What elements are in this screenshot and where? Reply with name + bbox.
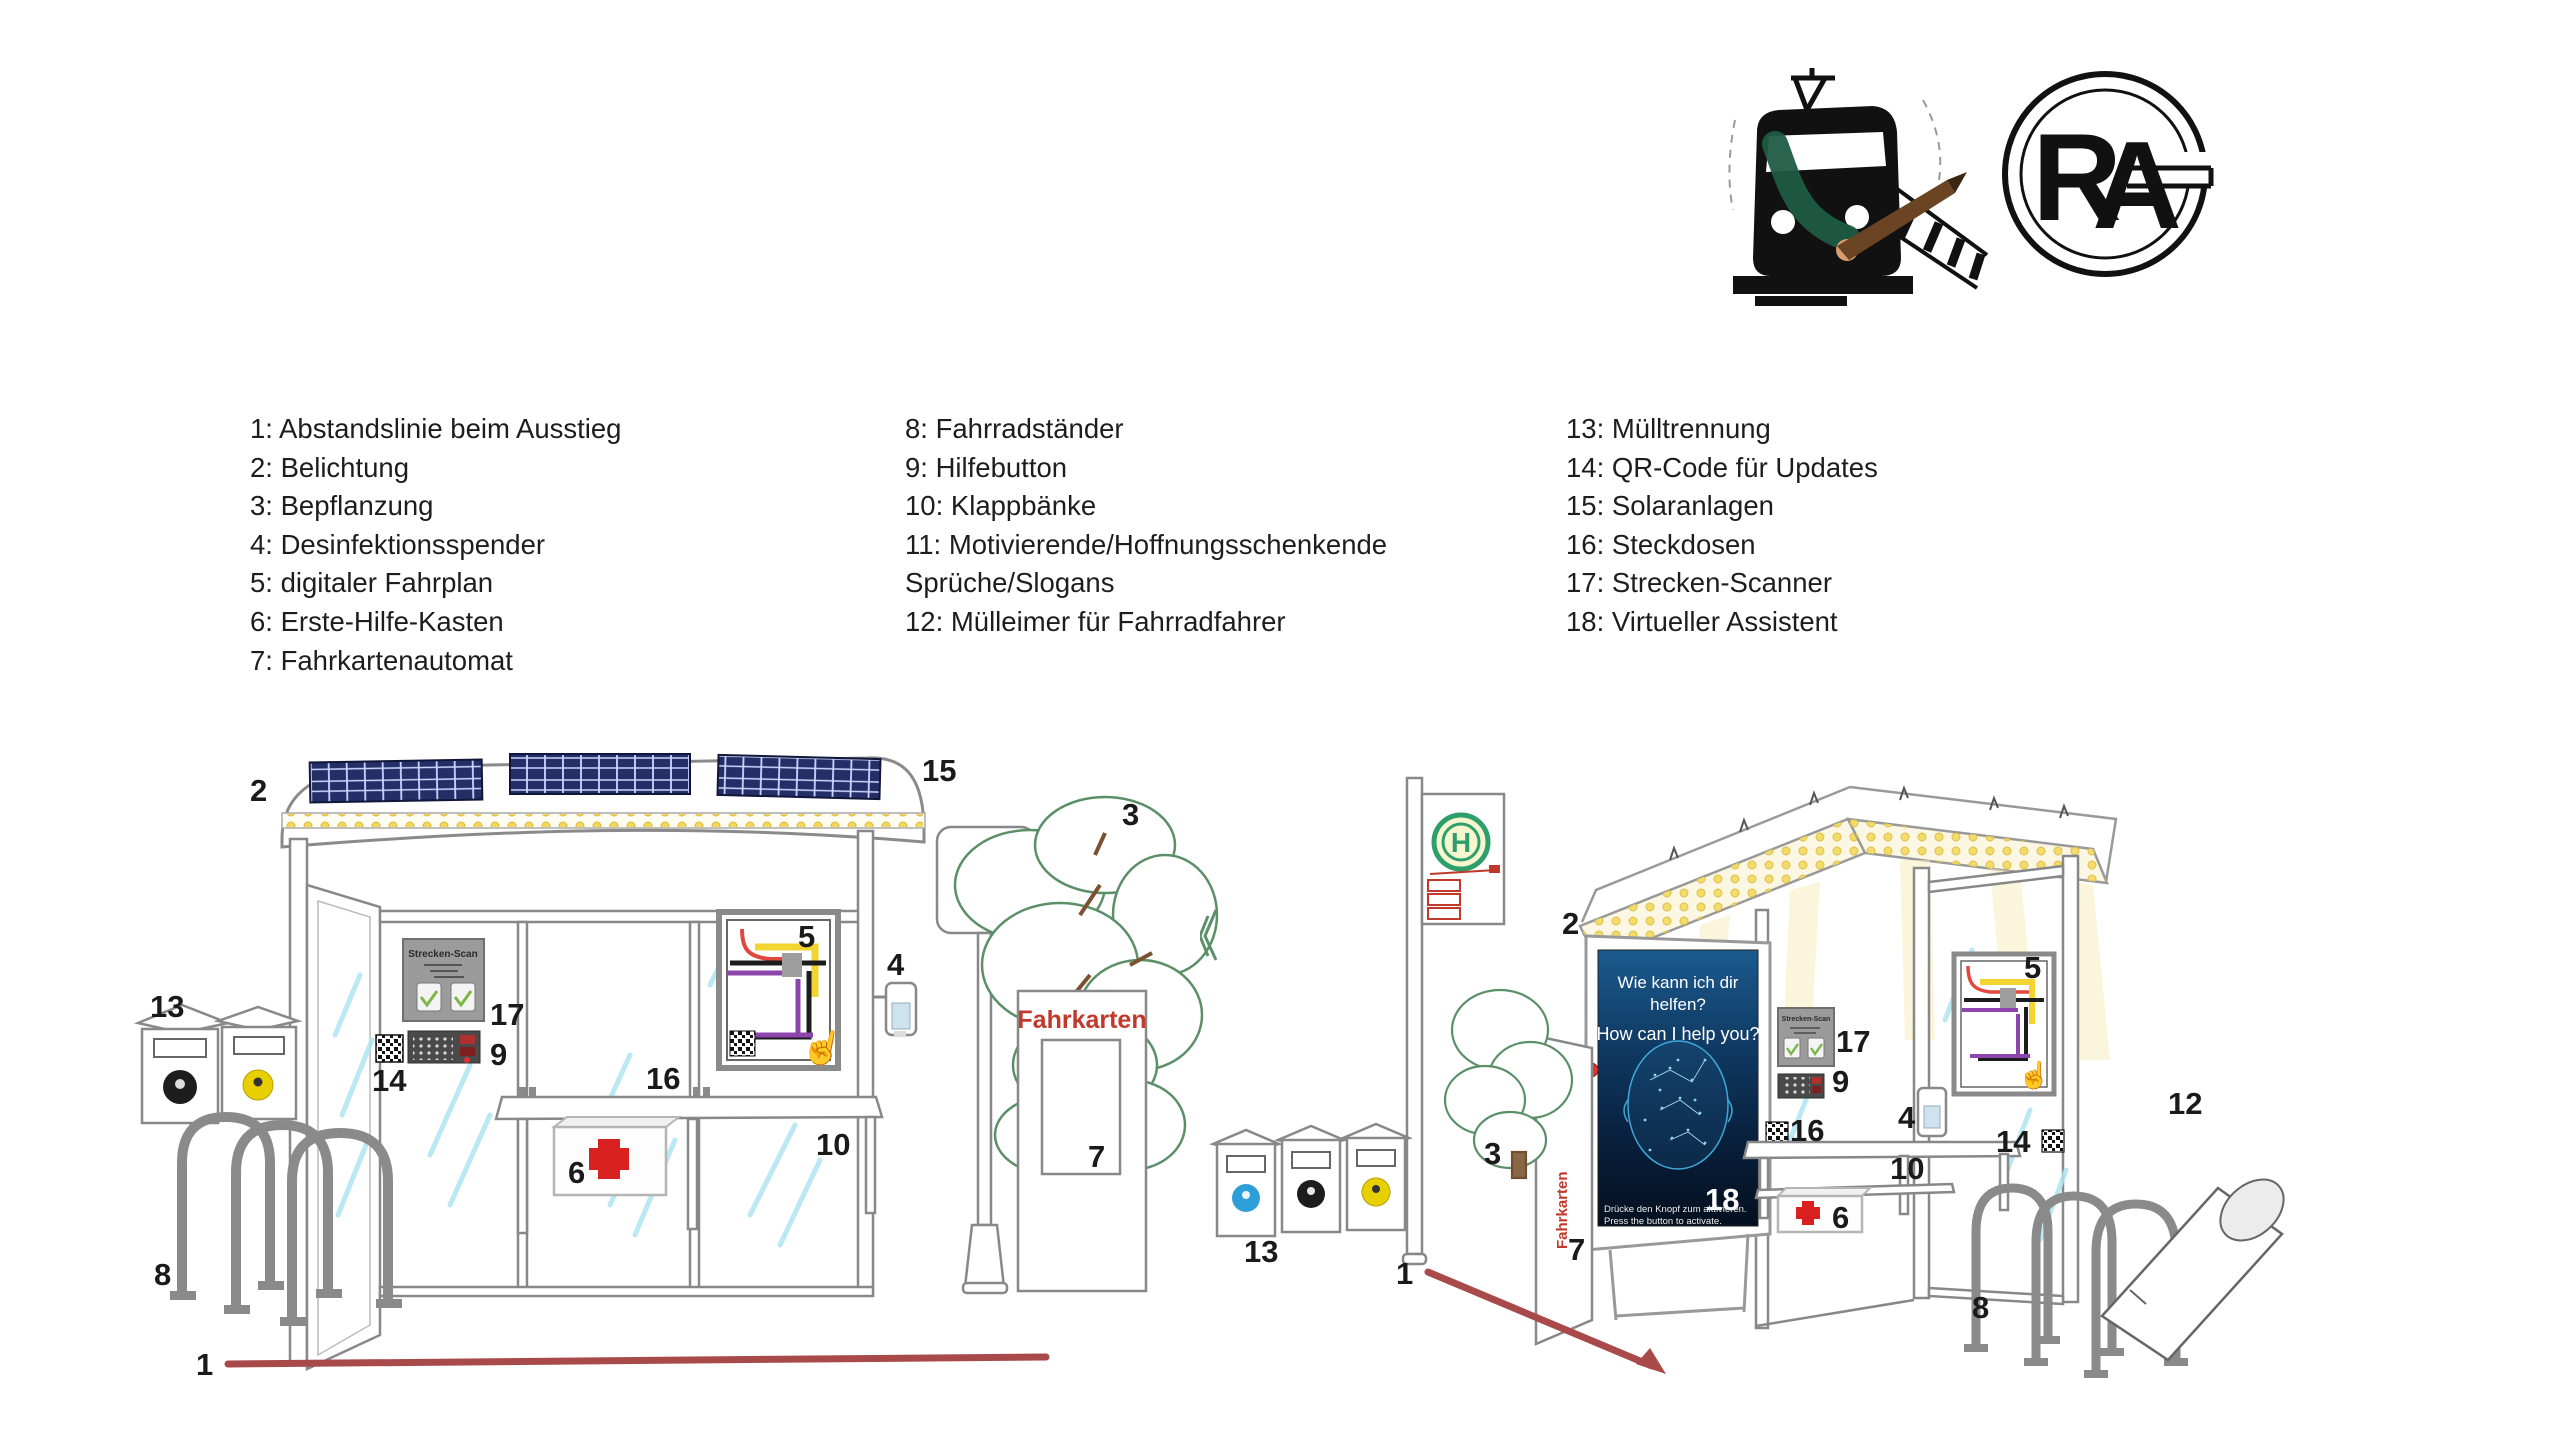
gra-monogram-logo: R A xyxy=(1985,52,2225,297)
callout-1: 1 xyxy=(1396,1256,1413,1291)
callout-12: 12 xyxy=(2168,1086,2202,1121)
callout-5: 5 xyxy=(2024,950,2041,985)
legend-item: 8: Fahrradständer xyxy=(905,410,1525,449)
callout-15: 15 xyxy=(922,753,956,788)
desinfektion-dispenser-right[interactable] xyxy=(1918,1088,1946,1136)
callout-9: 9 xyxy=(490,1037,507,1072)
callout-2: 2 xyxy=(1562,906,1579,941)
callout-9: 9 xyxy=(1832,1064,1849,1099)
qr-code-updates-right[interactable] xyxy=(2042,1130,2064,1152)
strecken-scanner-panel-right[interactable]: Strecken-Scan xyxy=(1778,1008,1834,1066)
callout-17: 17 xyxy=(490,997,524,1032)
callout-16: 16 xyxy=(1790,1113,1824,1148)
train-paintbrush-logo xyxy=(1695,60,2005,320)
red-cross-icon xyxy=(589,1148,629,1170)
callout-14: 14 xyxy=(372,1063,407,1098)
callout-6: 6 xyxy=(568,1155,585,1190)
legend-item: 18: Virtueller Assistent xyxy=(1566,603,2166,642)
cyclist-waste-chute[interactable] xyxy=(2102,1167,2295,1360)
right-scene-illustration: H xyxy=(1200,760,2300,1440)
shelter-roof-left xyxy=(282,754,925,847)
help-button-keypad-right[interactable] xyxy=(1778,1074,1824,1098)
waste-separation-bins-right[interactable] xyxy=(1213,1124,1409,1236)
poster-note-en: Press the button to activate. xyxy=(1604,1216,1722,1227)
legend-column-1: 1: Abstandslinie beim Ausstieg2: Belicht… xyxy=(250,410,890,680)
callout-13: 13 xyxy=(1244,1234,1278,1269)
legend-item: 7: Fahrkartenautomat xyxy=(250,642,890,681)
legend-item: 9: Hilfebutton xyxy=(905,449,1525,488)
scan-map-icon xyxy=(451,983,475,1011)
callout-8: 8 xyxy=(154,1257,171,1292)
callout-5: 5 xyxy=(798,919,815,954)
red-cross-icon xyxy=(1796,1207,1820,1219)
callout-3: 3 xyxy=(1484,1136,1501,1171)
callout-4: 4 xyxy=(1898,1100,1916,1135)
distance-line xyxy=(228,1357,1046,1364)
legend-item: 4: Desinfektionsspender xyxy=(250,526,890,565)
legend-item: 12: Mülleimer für Fahrradfahrer xyxy=(905,603,1525,642)
legend-item: 11: Motivierende/Hoffnungsschenkende xyxy=(905,526,1525,565)
fahrkarten-label: Fahrkarten xyxy=(1017,1006,1146,1034)
callout-14: 14 xyxy=(1996,1124,2031,1159)
callout-16: 16 xyxy=(646,1061,680,1096)
poster-line2: helfen? xyxy=(1650,995,1706,1014)
legend-item: 3: Bepflanzung xyxy=(250,487,890,526)
h-sign-letter: H xyxy=(1451,827,1471,858)
legend-column-2: 8: Fahrradständer9: Hilfebutton10: Klapp… xyxy=(905,410,1525,642)
strecken-scan-label: Strecken-Scan xyxy=(408,949,477,960)
fahrkartenautomat[interactable]: Fahrkarten xyxy=(1017,991,1146,1291)
legend-column-3: 13: Mülltrennung14: QR-Code für Updates1… xyxy=(1566,410,2166,642)
legend-item: 6: Erste-Hilfe-Kasten xyxy=(250,603,890,642)
legend-item: 1: Abstandslinie beim Ausstieg xyxy=(250,410,890,449)
legend-item: 16: Steckdosen xyxy=(1566,526,2166,565)
strecken-scan-label: Strecken-Scan xyxy=(1782,1016,1831,1023)
qr-code-fahrplan[interactable] xyxy=(730,1031,755,1056)
poster-note-de: Drücke den Knopf zum aktivieren. xyxy=(1604,1204,1747,1215)
poster-line1: Wie kann ich dir xyxy=(1618,973,1739,992)
qr-code-outlets[interactable] xyxy=(1766,1122,1788,1144)
help-button-icon[interactable] xyxy=(464,1057,470,1063)
callout-2: 2 xyxy=(250,773,267,808)
legend-item: 17: Strecken-Scanner xyxy=(1566,564,2166,603)
hand-pointer-icon: ☝ xyxy=(2018,1059,2050,1091)
legend-item: Sprüche/Slogans xyxy=(905,564,1525,603)
desinfektion-dispenser[interactable] xyxy=(873,983,916,1037)
strecken-scanner-panel[interactable]: Strecken-Scan xyxy=(403,939,484,1021)
callout-13: 13 xyxy=(150,989,184,1024)
legend-item: 5: digitaler Fahrplan xyxy=(250,564,890,603)
first-aid-box-right[interactable] xyxy=(1778,1188,1870,1232)
train-icon xyxy=(1729,68,1987,306)
left-scene-illustration: Strecken-Scan ☝ xyxy=(130,735,1220,1415)
scan-map-icon xyxy=(417,983,441,1011)
callout-10: 10 xyxy=(1890,1151,1924,1186)
virtual-assistant-display[interactable]: Wie kann ich dir helfen? How can I help … xyxy=(1584,936,1770,1320)
solar-panel xyxy=(718,755,881,799)
help-button-keypad[interactable] xyxy=(408,1031,480,1063)
callout-10: 10 xyxy=(816,1127,850,1162)
tree-edge-fragment xyxy=(1200,910,1216,960)
legend-item: 10: Klappbänke xyxy=(905,487,1525,526)
legend-item: 15: Solaranlagen xyxy=(1566,487,2166,526)
legend-item: 2: Belichtung xyxy=(250,449,890,488)
solar-panel xyxy=(310,760,483,803)
digital-fahrplan[interactable]: ☝ xyxy=(719,912,848,1072)
callout-4: 4 xyxy=(887,947,905,982)
legend-item: 14: QR-Code für Updates xyxy=(1566,449,2166,488)
solar-panel xyxy=(510,754,690,794)
qr-code-updates[interactable] xyxy=(376,1035,403,1062)
callout-7: 7 xyxy=(1568,1232,1585,1267)
callout-6: 6 xyxy=(1832,1200,1849,1235)
callout-17: 17 xyxy=(1836,1024,1870,1059)
callout-8: 8 xyxy=(1972,1290,1989,1325)
callout-1: 1 xyxy=(196,1347,213,1382)
poster-page: R A 1: Abstandslinie beim Ausstieg2: Bel… xyxy=(0,0,2560,1440)
monogram-letter-a: A xyxy=(2092,117,2182,255)
legend-item: 13: Mülltrennung xyxy=(1566,410,2166,449)
callout-3: 3 xyxy=(1122,797,1139,832)
callout-7: 7 xyxy=(1088,1139,1105,1174)
